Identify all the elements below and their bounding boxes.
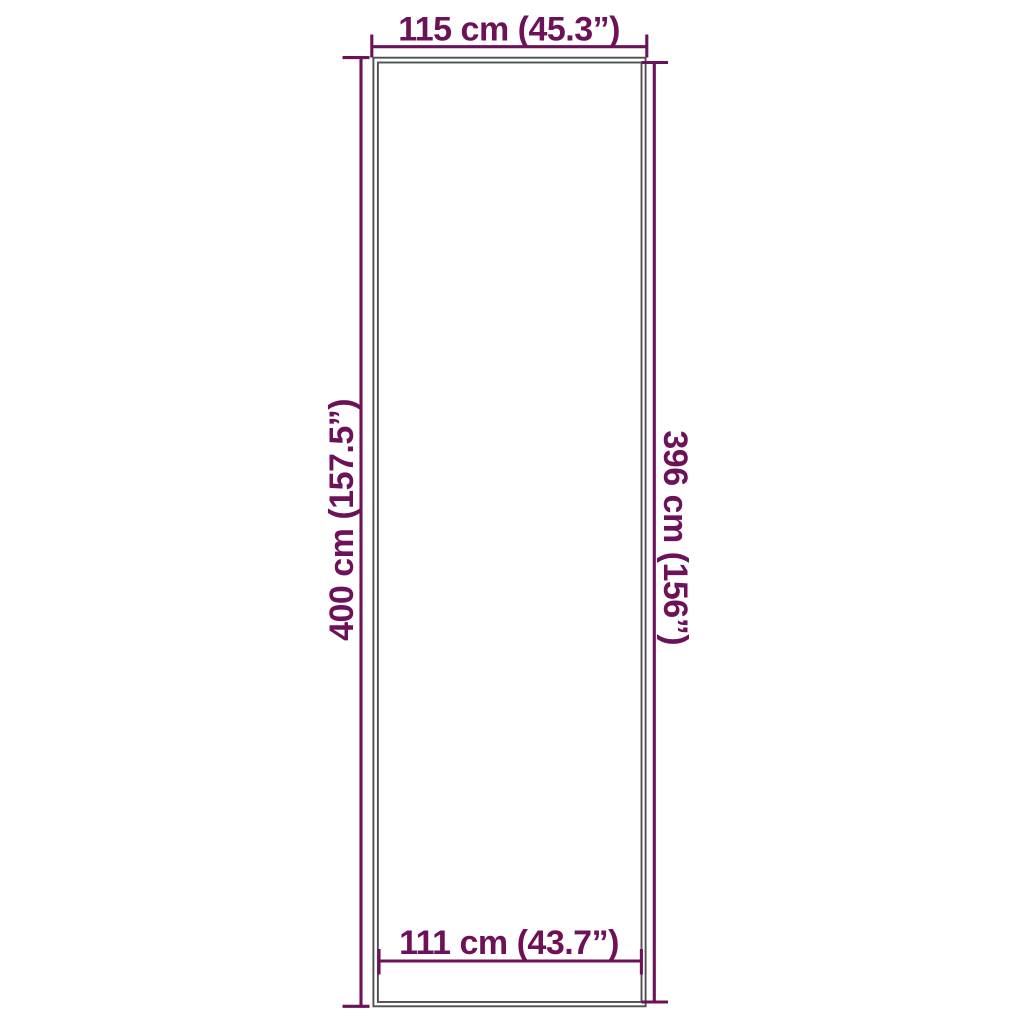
svg-text:396 cm (156”): 396 cm (156”) [656, 430, 694, 645]
svg-text:400 cm (157.5”): 400 cm (157.5”) [323, 399, 361, 641]
svg-text:111 cm (43.7”): 111 cm (43.7”) [399, 924, 619, 962]
svg-text:115 cm (45.3”): 115 cm (45.3”) [398, 11, 620, 49]
